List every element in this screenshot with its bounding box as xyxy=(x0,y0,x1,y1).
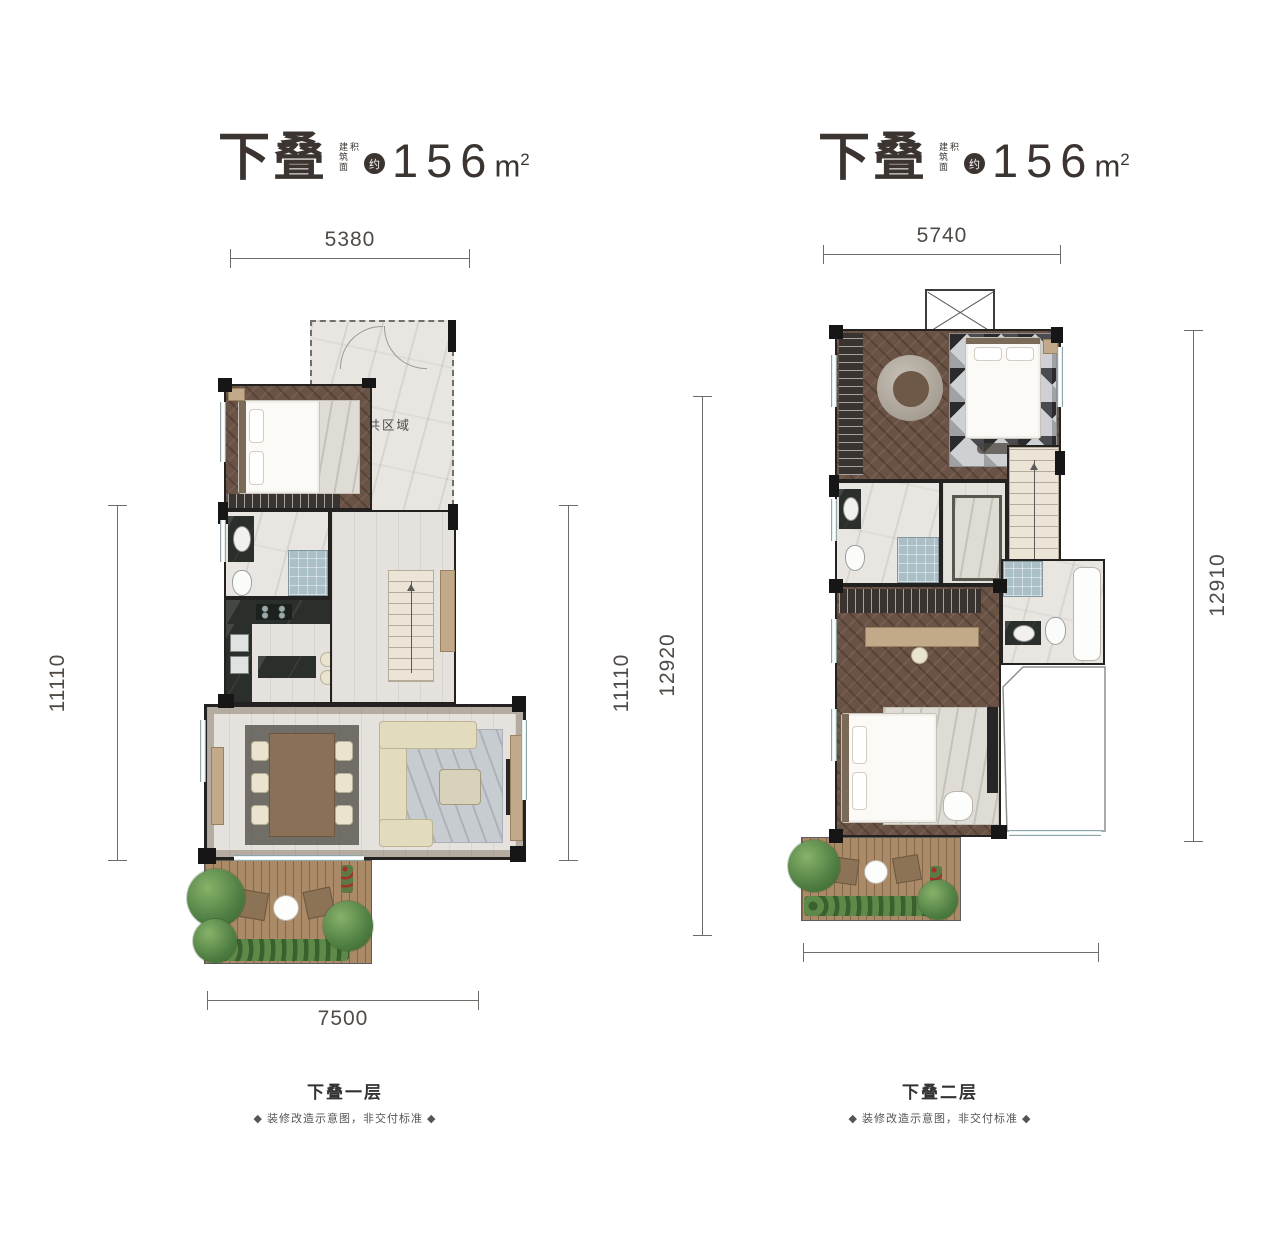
stairs-icon xyxy=(388,570,434,682)
wall-segment xyxy=(448,320,456,352)
plan1-title-area-label: 建筑面积 xyxy=(337,142,359,178)
plan1-title-main: 下叠 xyxy=(218,130,328,186)
sink-icon xyxy=(233,526,251,552)
plan2-caption-note: ◆ 装修改造示意图，非交付标准 ◆ xyxy=(800,1110,1080,1126)
sideboard-icon xyxy=(211,747,224,825)
pillow-icon xyxy=(249,409,264,443)
room-living-dining xyxy=(204,704,526,860)
wall-segment xyxy=(510,846,526,862)
pillow-icon xyxy=(1006,347,1034,361)
kitchen-sink-icon xyxy=(230,656,249,674)
window-icon xyxy=(220,402,226,462)
room-bathroom3 xyxy=(1001,559,1105,665)
runner-rug xyxy=(952,495,1002,581)
bathtub-icon xyxy=(1073,567,1101,661)
tv-icon xyxy=(506,759,510,815)
plan2-caption: 下叠二层 ◆ 装修改造示意图，非交付标准 ◆ xyxy=(800,1078,1080,1126)
plan1-title: 下叠 建筑面积 约 156 m2 xyxy=(218,124,530,186)
wall-segment xyxy=(993,579,1007,593)
wall-segment xyxy=(512,696,526,712)
flowers-icon xyxy=(341,865,353,893)
dim-bottom-plan1: 7500 xyxy=(207,1000,479,1031)
wall-segment xyxy=(991,825,1007,839)
bed-headboard xyxy=(239,401,246,493)
plan2-unit-sup: 2 xyxy=(1120,150,1129,169)
sofa-chaise-icon xyxy=(379,819,433,847)
window-icon xyxy=(831,499,837,541)
dim-left-plan1-line xyxy=(117,505,118,861)
plan1-title-area-value: 156 xyxy=(392,136,494,186)
room-terrace1 xyxy=(204,860,372,964)
patio-table-icon xyxy=(273,895,299,921)
tree-icon xyxy=(788,840,840,892)
vanity-desk-icon xyxy=(865,627,979,647)
plan2-title-area-value: 156 xyxy=(992,136,1094,186)
window-icon xyxy=(1009,830,1101,836)
wall-segment xyxy=(829,829,843,843)
kitchen-sink-icon xyxy=(230,634,249,652)
room-corridor xyxy=(941,481,1007,585)
window-icon xyxy=(831,709,837,761)
plan2-caption-title: 下叠二层 xyxy=(800,1078,1080,1103)
shower-icon xyxy=(288,550,328,596)
kitchen-island xyxy=(258,656,316,678)
chair-icon xyxy=(335,773,353,793)
sofa-icon xyxy=(379,721,477,749)
wall-segment xyxy=(829,579,843,593)
dim-label-7500: 7500 xyxy=(207,1007,479,1031)
bed-icon xyxy=(841,713,937,823)
dim-line xyxy=(823,254,1061,255)
chair-icon xyxy=(251,805,269,825)
wall-segment xyxy=(218,378,232,392)
dim-label-5740: 5740 xyxy=(823,224,1061,248)
window-icon xyxy=(234,855,364,861)
plan1-title-unit: m2 xyxy=(494,140,529,186)
toilet-icon xyxy=(1045,617,1066,645)
plan2-title-area-label: 建筑面积 xyxy=(937,142,959,178)
dim-bottom-plan2 xyxy=(803,952,1099,959)
dim-line xyxy=(230,258,470,259)
stairs-arrow-icon xyxy=(411,581,412,673)
sink-icon xyxy=(843,497,859,521)
dim-line xyxy=(803,952,1099,953)
coffee-table-icon xyxy=(439,769,481,805)
room-bathroom1 xyxy=(224,510,330,598)
lounge-chair-icon xyxy=(943,791,973,821)
wall-segment xyxy=(198,848,216,864)
plan1-caption-note: ◆ 装修改造示意图，非交付标准 ◆ xyxy=(205,1110,485,1126)
plan2-title: 下叠 建筑面积 约 156 m2 xyxy=(818,124,1130,186)
patio-chair-icon xyxy=(892,854,922,884)
bed-headboard xyxy=(966,338,1040,344)
toilet-icon xyxy=(232,570,252,596)
dim-label-5380: 5380 xyxy=(230,228,470,252)
round-table-icon xyxy=(893,371,929,407)
bed-icon xyxy=(238,400,320,494)
dim-label-11110-left: 11110 xyxy=(46,643,70,723)
door-arc-icon xyxy=(340,326,383,369)
chair-icon xyxy=(335,741,353,761)
room-bedroom1 xyxy=(224,384,372,510)
wardrobe-icon xyxy=(839,589,981,613)
chair-icon xyxy=(251,741,269,761)
door-arc-icon xyxy=(384,326,427,369)
window-icon xyxy=(831,355,837,407)
plan1-unit-m: m xyxy=(494,148,520,183)
window-icon xyxy=(1057,347,1063,407)
dim-top-plan1: 5380 xyxy=(230,228,470,259)
room-hallway xyxy=(330,510,456,704)
shower-icon xyxy=(897,537,939,583)
plan1-caption-title: 下叠一层 xyxy=(205,1078,485,1103)
wall-segment xyxy=(448,504,458,530)
dim-label-12910: 12910 xyxy=(1206,545,1230,625)
dim-left-plan2-line xyxy=(702,396,703,936)
room-terrace2 xyxy=(801,837,961,921)
plan1-caption: 下叠一层 ◆ 装修改造示意图，非交付标准 ◆ xyxy=(205,1078,485,1126)
pillow-icon xyxy=(974,347,1002,361)
chair-icon xyxy=(335,805,353,825)
chair-icon xyxy=(251,773,269,793)
tv-cabinet-icon xyxy=(987,707,998,793)
tree-icon xyxy=(193,919,237,963)
void-open-space xyxy=(1001,665,1107,833)
window-icon xyxy=(521,720,527,800)
window-icon xyxy=(831,619,837,663)
window-icon xyxy=(220,520,226,562)
plan2-title-approx-badge: 约 xyxy=(964,153,985,174)
dim-line xyxy=(207,1000,479,1001)
room-bathroom2 xyxy=(835,481,941,585)
plan2-drawing xyxy=(795,285,1115,945)
pillow-icon xyxy=(249,451,264,485)
wall-segment xyxy=(1055,451,1065,475)
stove-icon xyxy=(256,604,292,620)
plan1-unit-sup: 2 xyxy=(520,150,529,169)
plan2-unit-m: m xyxy=(1094,148,1120,183)
dim-label-11110-right: 11110 xyxy=(610,643,634,723)
cabinet-icon xyxy=(440,570,455,652)
floorplan-brochure: 下叠 建筑面积 约 156 m2 下叠 建筑面积 约 156 m2 5380 5… xyxy=(0,0,1280,1241)
patio-table-icon xyxy=(864,860,888,884)
wardrobe-icon xyxy=(228,494,340,508)
dim-label-12920: 12920 xyxy=(656,625,680,705)
dim-right-plan2-line xyxy=(1193,330,1194,842)
plan1-title-approx-badge: 约 xyxy=(364,153,385,174)
window-icon xyxy=(200,720,206,782)
wall-segment xyxy=(218,694,234,708)
shower-icon xyxy=(1003,561,1043,597)
wall-segment xyxy=(829,475,839,497)
pillow-icon xyxy=(852,772,867,810)
plan1-drawing: 公共区域 xyxy=(190,318,550,973)
chair-icon xyxy=(911,647,928,664)
tree-icon xyxy=(918,880,958,920)
room-master-bedroom xyxy=(835,585,1001,837)
wall-segment xyxy=(829,325,843,339)
room-kitchen xyxy=(224,598,338,704)
dim-top-plan2: 5740 xyxy=(823,224,1061,255)
wall-segment xyxy=(362,378,376,388)
plan2-title-main: 下叠 xyxy=(818,130,928,186)
wall-segment xyxy=(1051,327,1063,343)
sink-icon xyxy=(1013,625,1035,642)
bed-headboard xyxy=(842,714,849,822)
dining-table-icon xyxy=(269,733,335,837)
tree-icon xyxy=(323,901,373,951)
plan2-title-unit: m2 xyxy=(1094,140,1129,186)
dim-right-plan1-line xyxy=(568,505,569,861)
pillow-icon xyxy=(852,726,867,764)
wardrobe-icon xyxy=(839,333,863,475)
stairs-arrow-icon xyxy=(1034,460,1035,570)
toilet-icon xyxy=(845,545,865,571)
bed-icon xyxy=(965,337,1041,439)
